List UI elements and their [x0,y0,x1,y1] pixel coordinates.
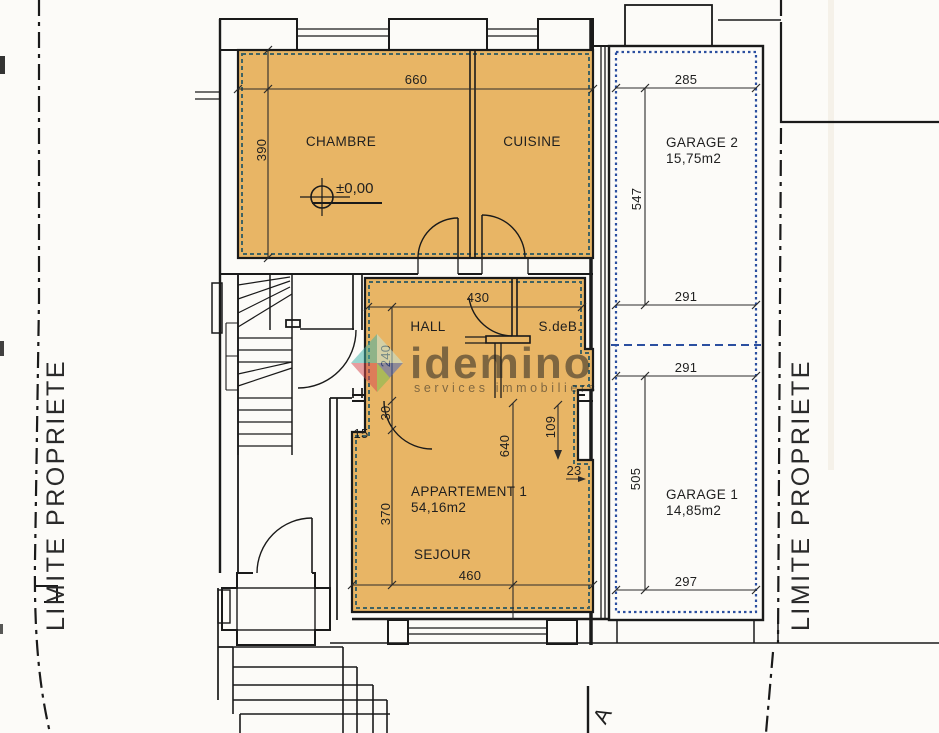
dim-30: 30 [378,405,393,420]
garage-block [601,46,763,620]
dim-430: 430 [467,290,490,305]
dim-15: 15 [353,426,368,441]
room-label-garage1: GARAGE 1 [666,487,738,502]
dim-297: 297 [675,574,698,589]
room-label-cuisine: CUISINE [503,134,561,149]
dim-23: 23 [566,463,581,478]
room-label-chambre: CHAMBRE [306,134,376,149]
room-label-garage2-area: 15,75m2 [666,151,721,166]
dim-291-top: 291 [675,289,698,304]
dim-660: 660 [405,72,428,87]
dim-291-mid: 291 [675,360,698,375]
room-label-apartment: APPARTEMENT 1 [411,484,527,499]
room-label-garage1-area: 14,85m2 [666,503,721,518]
limite-propriete-left: LIMITE PROPRIETE [42,359,70,631]
dim-640: 640 [497,435,512,458]
section-marker-label: A [588,703,617,728]
room-label-hall: HALL [410,319,445,334]
door-arc-hall [298,330,356,388]
dim-285: 285 [675,72,698,87]
watermark-tagline: services immobiliers [414,381,599,395]
staircase [238,274,356,455]
limite-propriete-right: LIMITE PROPRIETE [787,359,815,631]
floor-plan-drawing: ±0,00 660 390 430 240 30 15 370 640 109 … [0,0,939,733]
dim-370: 370 [378,503,393,526]
section-marker: A [588,686,617,733]
terrace [352,619,609,644]
door-arc-entrance [257,518,312,573]
room-label-garage2: GARAGE 2 [666,135,738,150]
dim-460: 460 [459,568,482,583]
level-value: ±0,00 [336,180,373,197]
floor-plan-page: ±0,00 660 390 430 240 30 15 370 640 109 … [0,0,939,733]
dim-390: 390 [254,139,269,162]
room-label-sejour: SEJOUR [414,547,471,562]
dim-109: 109 [543,416,558,439]
room-label-sdeb: S.deB. [539,319,582,334]
room-label-apartment-area: 54,16m2 [411,500,466,515]
dim-505: 505 [628,468,643,491]
dim-547: 547 [629,188,644,211]
